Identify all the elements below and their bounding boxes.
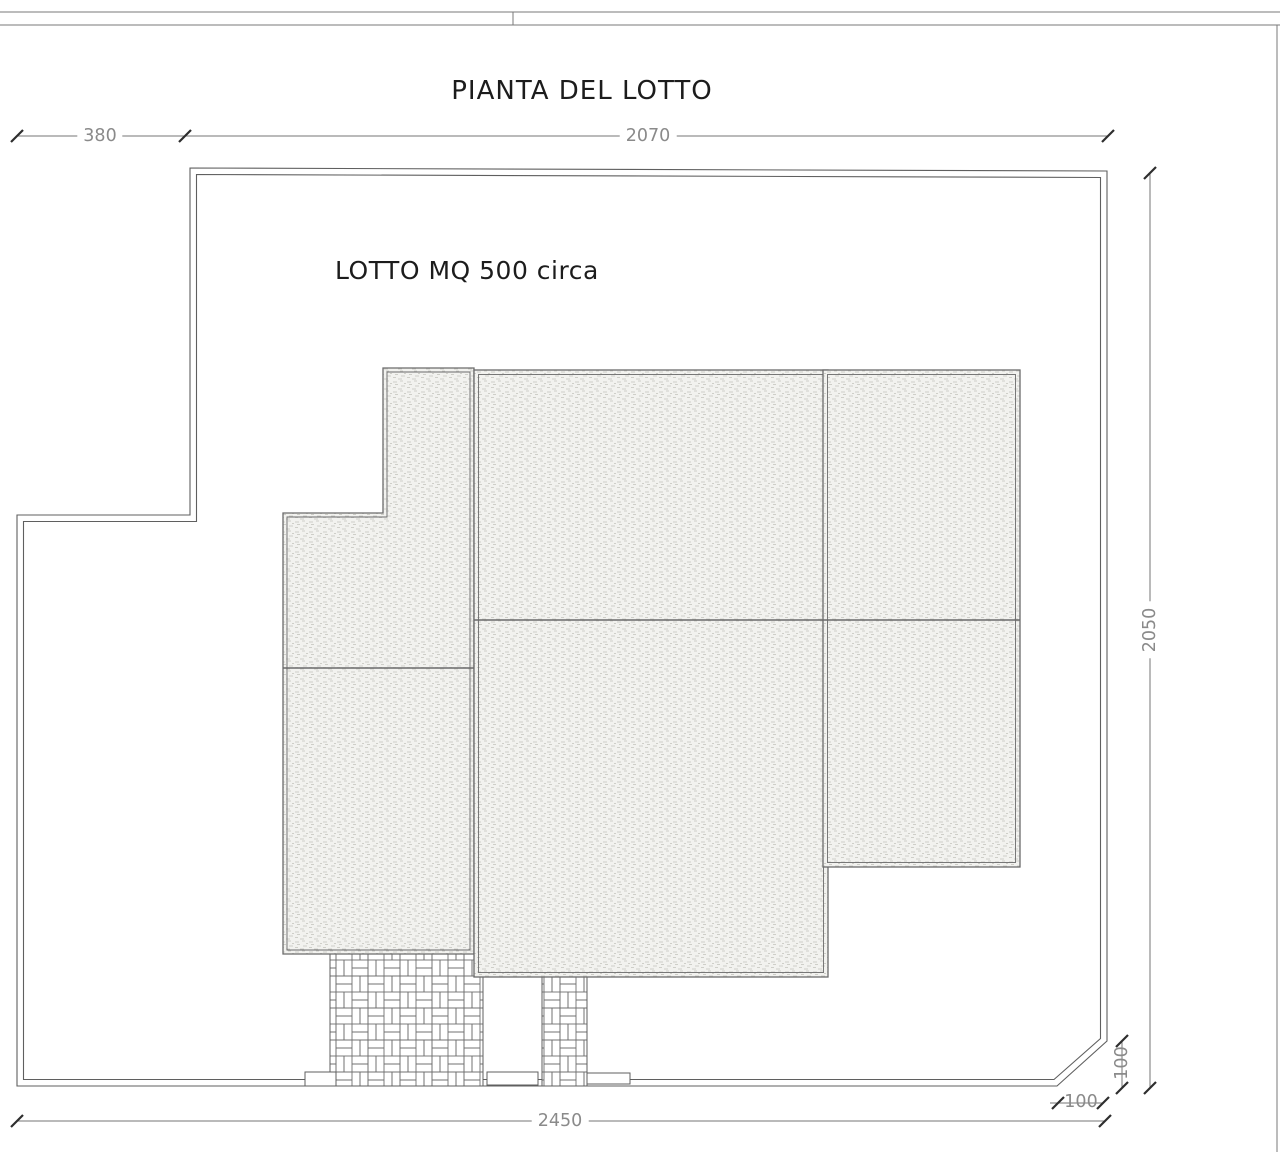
dimension-right-height: 2050 xyxy=(1140,602,1160,659)
drawing-sheet: PIANTA DEL LOTTO LOTTO MQ 500 circa 380 … xyxy=(0,0,1280,1152)
site-plan-drawing xyxy=(0,0,1280,1152)
left-wing xyxy=(283,368,474,954)
central-building xyxy=(474,370,828,977)
buildings xyxy=(283,368,1020,977)
lot-area-label: LOTTO MQ 500 circa xyxy=(335,256,599,285)
dimension-bottom-width: 2450 xyxy=(532,1111,589,1131)
dimension-chamfer-width: 100 xyxy=(1062,1092,1099,1112)
small-brick-walkway xyxy=(542,977,587,1086)
page-title: PIANTA DEL LOTTO xyxy=(451,76,713,106)
curb-step xyxy=(487,1072,538,1085)
dimension-top-width: 2070 xyxy=(620,126,677,146)
large-brick-walkway xyxy=(330,954,483,1086)
dimension-left-offset: 380 xyxy=(77,126,122,146)
curb-step xyxy=(587,1073,630,1084)
curb-step xyxy=(305,1072,336,1086)
right-wing xyxy=(823,370,1020,867)
dimension-chamfer-height: 100 xyxy=(1112,1044,1132,1081)
